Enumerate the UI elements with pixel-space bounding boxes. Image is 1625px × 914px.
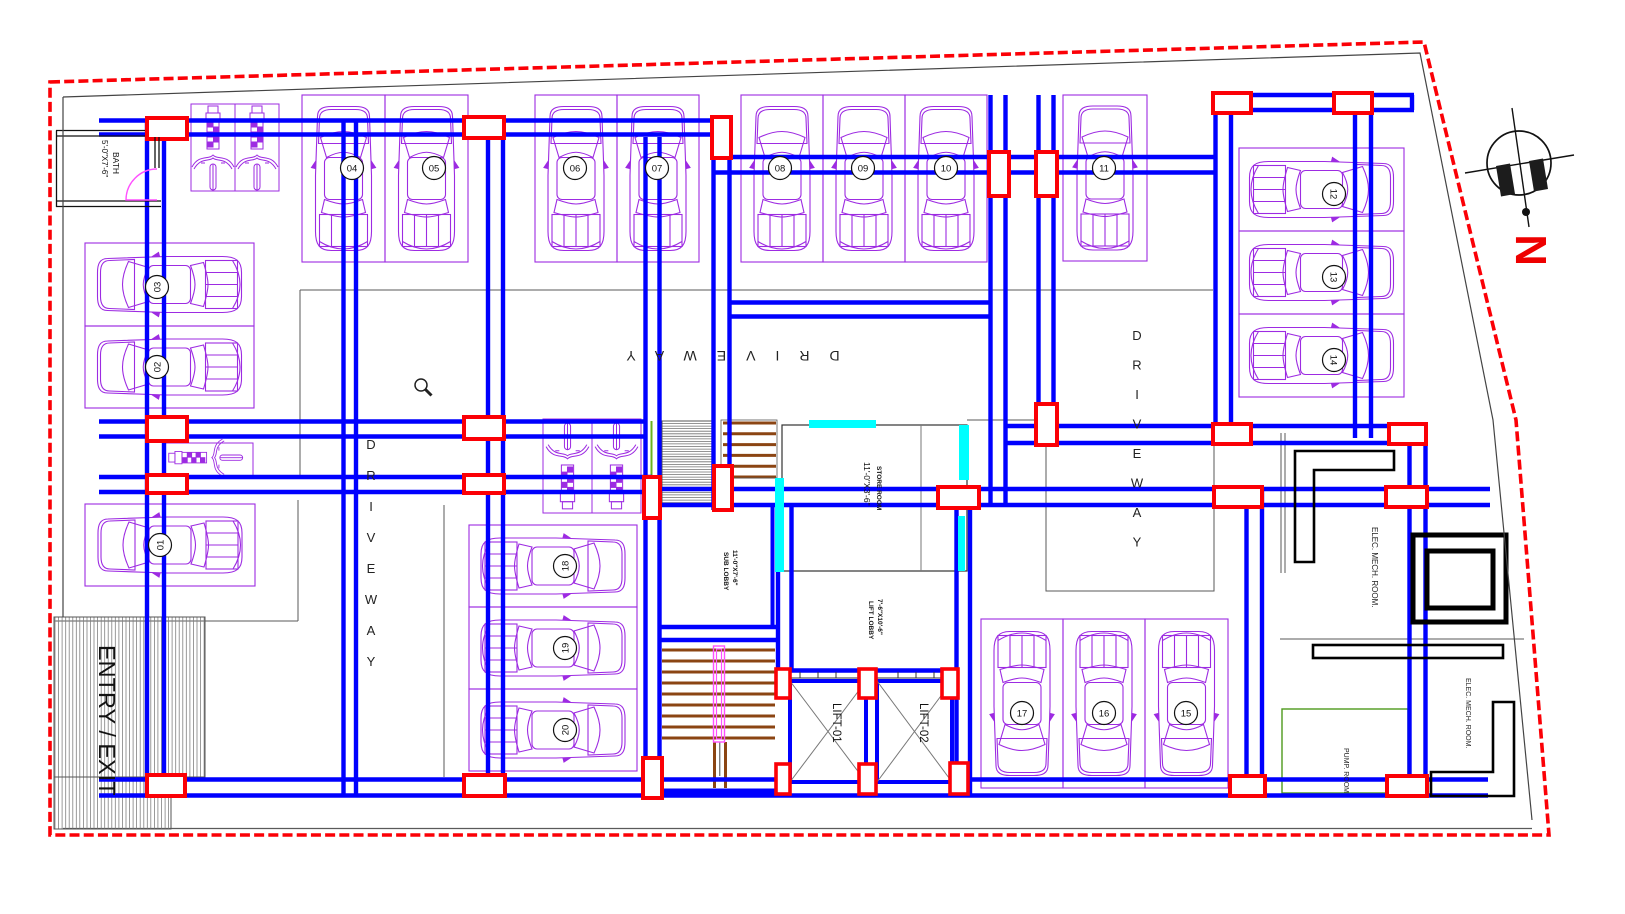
svg-text:02: 02 <box>152 362 163 373</box>
svg-text:05: 05 <box>429 163 440 174</box>
svg-text:W: W <box>1131 476 1144 491</box>
svg-text:E: E <box>1133 446 1142 461</box>
svg-text:08: 08 <box>775 163 786 174</box>
svg-text:DRIVEWAY: DRIVEWAY <box>606 348 839 364</box>
svg-text:V: V <box>367 530 376 545</box>
svg-text:16: 16 <box>1099 708 1110 719</box>
svg-text:13: 13 <box>1328 272 1339 283</box>
svg-text:09: 09 <box>858 163 869 174</box>
svg-text:ELEC. MECH. ROOM.: ELEC. MECH. ROOM. <box>1464 678 1471 748</box>
svg-text:Y: Y <box>1133 535 1142 550</box>
svg-text:11'-0"X7'-6": 11'-0"X7'-6" <box>731 550 738 586</box>
svg-text:20: 20 <box>560 725 571 736</box>
svg-text:N: N <box>1507 234 1556 266</box>
svg-text:06: 06 <box>570 163 581 174</box>
svg-text:Y: Y <box>367 654 376 669</box>
svg-text:07: 07 <box>652 163 663 174</box>
svg-text:LIFT-02: LIFT-02 <box>917 703 929 743</box>
svg-text:04: 04 <box>347 163 358 174</box>
svg-text:14: 14 <box>1328 355 1339 366</box>
svg-text:11'-0"X3'-6": 11'-0"X3'-6" <box>862 462 872 506</box>
svg-text:5'-0"X7'-6": 5'-0"X7'-6" <box>100 140 109 177</box>
svg-text:I: I <box>1135 387 1139 402</box>
svg-text:01: 01 <box>155 540 166 551</box>
svg-text:ENTRY / EXIT: ENTRY / EXIT <box>94 645 120 796</box>
svg-text:R: R <box>1132 358 1141 373</box>
svg-text:W: W <box>365 592 378 607</box>
svg-text:03: 03 <box>152 282 163 293</box>
svg-text:A: A <box>367 623 376 638</box>
svg-text:15: 15 <box>1181 708 1192 719</box>
svg-text:STORE ROOM: STORE ROOM <box>875 466 882 510</box>
svg-text:A: A <box>1133 505 1142 520</box>
svg-text:LIFT LOBBY: LIFT LOBBY <box>867 601 874 640</box>
svg-text:PUMP. ROOM: PUMP. ROOM <box>1342 748 1349 793</box>
svg-text:BATH: BATH <box>111 152 121 174</box>
svg-text:17: 17 <box>1017 708 1028 719</box>
svg-text:11: 11 <box>1099 163 1109 174</box>
svg-text:18: 18 <box>560 561 571 572</box>
svg-text:I: I <box>369 499 373 514</box>
svg-text:7'-6"X10'-6": 7'-6"X10'-6" <box>876 599 883 635</box>
svg-text:D: D <box>366 437 375 452</box>
svg-text:V: V <box>1133 417 1142 432</box>
svg-text:19: 19 <box>560 643 571 654</box>
svg-text:R: R <box>366 468 375 483</box>
svg-text:E: E <box>367 561 376 576</box>
svg-text:12: 12 <box>1328 189 1339 200</box>
svg-text:D: D <box>1132 328 1141 343</box>
svg-text:10: 10 <box>941 163 952 174</box>
svg-text:LIFT-01: LIFT-01 <box>830 703 842 743</box>
svg-text:ELEC. MECH. ROOM.: ELEC. MECH. ROOM. <box>1370 527 1379 607</box>
svg-text:SUB LOBBY: SUB LOBBY <box>722 552 729 591</box>
